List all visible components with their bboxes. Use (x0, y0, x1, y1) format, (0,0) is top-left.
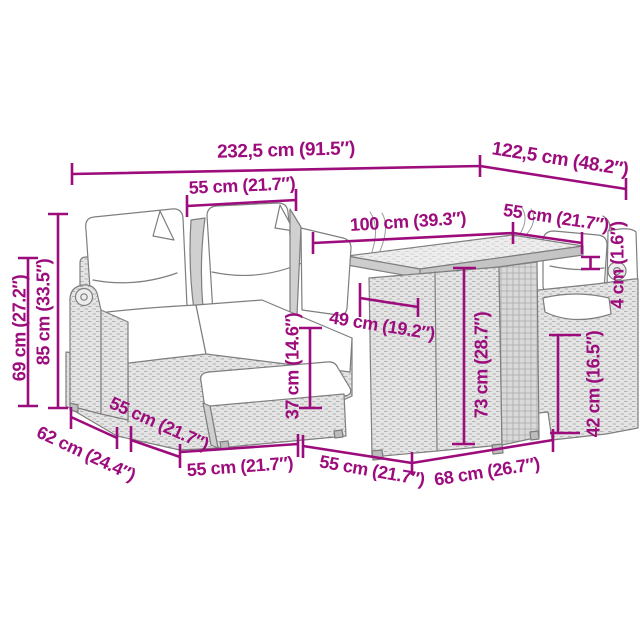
right-seat-cushion (543, 294, 611, 320)
divider-post-2 (290, 209, 301, 317)
label-backrest-height: 85 cm (33.5″) (34, 259, 55, 365)
label-seat-height: 42 cm (16.5″) (584, 331, 605, 437)
divider-post-1 (190, 218, 205, 310)
label-armrest-height: 69 cm (27.2″) (10, 275, 31, 381)
left-armrest-scroll (76, 289, 93, 306)
product-dimension-diagram: 232,5 cm (91.5″) 122,5 cm (48.2″) 55 cm … (0, 0, 640, 640)
footstool (201, 362, 351, 449)
label-table-top-thickness: 4 cm (1.6″) (608, 221, 629, 308)
label-footstool-height: 37 cm (14.6″) (283, 313, 304, 419)
label-total-width: 232,5 cm (91.5″) (217, 138, 355, 164)
table-body-right (499, 262, 539, 445)
label-table-height: 73 cm (28.7″) (472, 312, 493, 418)
furniture-line-drawing (0, 0, 640, 640)
